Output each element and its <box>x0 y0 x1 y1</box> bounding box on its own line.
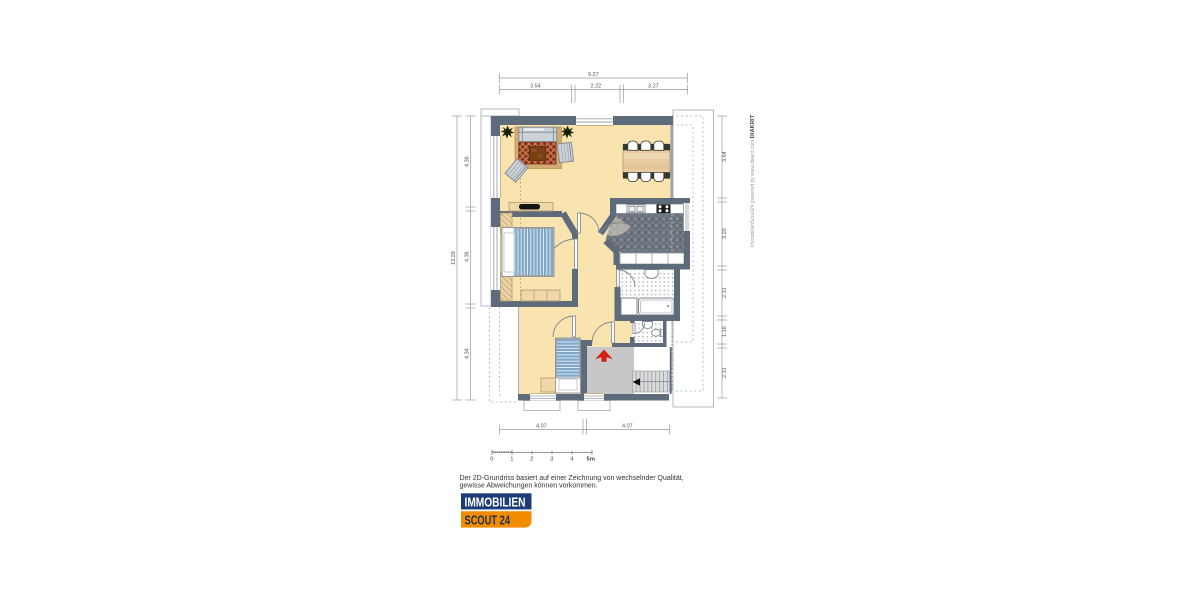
svg-text:2.31: 2.31 <box>722 367 728 378</box>
svg-text:gewisse Abweichungen können vo: gewisse Abweichungen können vorkommen. <box>460 482 598 489</box>
svg-text:4.34: 4.34 <box>465 348 471 359</box>
svg-text:ImmobilienScout24 powered by w: ImmobilienScout24 powered by www.diakrit… <box>750 114 756 247</box>
svg-text:4.36: 4.36 <box>465 251 471 262</box>
svg-text:1: 1 <box>510 457 513 463</box>
svg-text:3.54: 3.54 <box>530 84 541 90</box>
svg-text:4.36: 4.36 <box>465 156 471 167</box>
svg-text:3.64: 3.64 <box>722 151 728 162</box>
svg-text:1.16: 1.16 <box>722 326 728 337</box>
svg-text:0: 0 <box>490 457 493 463</box>
svg-text:3.20: 3.20 <box>722 228 728 239</box>
svg-text:4.07: 4.07 <box>622 424 633 430</box>
svg-text:2.31: 2.31 <box>722 287 728 298</box>
svg-text:2: 2 <box>530 457 533 463</box>
svg-text:4.07: 4.07 <box>536 424 547 430</box>
svg-text:2.22: 2.22 <box>591 84 602 90</box>
svg-text:IMMOBILIEN: IMMOBILIEN <box>465 494 526 509</box>
svg-text:5m: 5m <box>587 457 595 463</box>
svg-text:Der 2D-Grundriss basiert auf e: Der 2D-Grundriss basiert auf einer Zeich… <box>460 475 684 482</box>
svg-text:3.27: 3.27 <box>648 84 659 90</box>
svg-text:3: 3 <box>550 457 553 463</box>
svg-text:9.27: 9.27 <box>588 72 599 78</box>
svg-text:SCOUT 24: SCOUT 24 <box>465 513 511 528</box>
svg-text:13.29: 13.29 <box>451 251 457 265</box>
